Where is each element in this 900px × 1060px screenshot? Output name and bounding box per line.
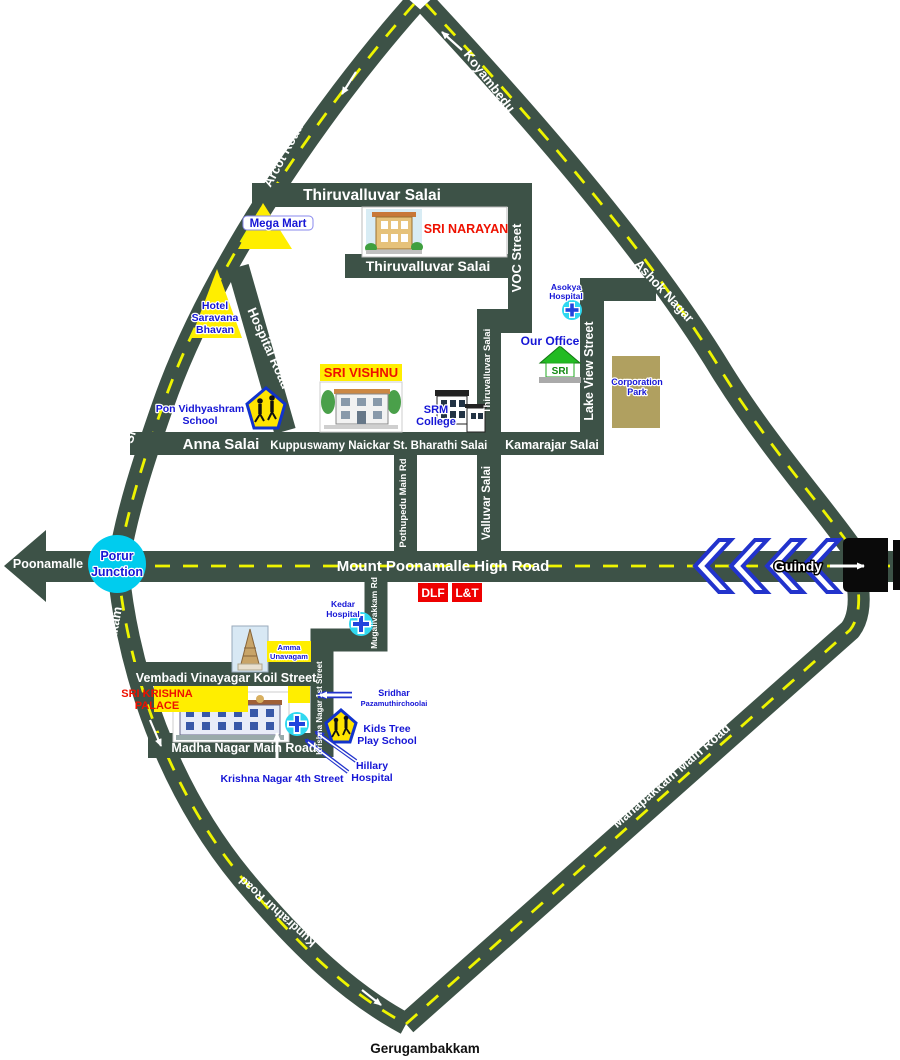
window xyxy=(450,400,456,407)
place-label-poonamalle: Poonamalle xyxy=(13,557,83,571)
window xyxy=(391,221,398,229)
cross-blue xyxy=(295,716,299,732)
ground xyxy=(366,250,422,254)
road-label-mphr: Mount Poonamalle High Road xyxy=(337,558,550,575)
road-label-thiruvalluvar-top: Thiruvalluvar Salai xyxy=(303,187,441,204)
figure-head xyxy=(344,716,349,721)
road-label-bharathi: Bharathi Salai xyxy=(411,440,488,452)
road-label-voc: VOC Street xyxy=(509,223,524,292)
road-label-pothupedu: Pothupedu Main Rd xyxy=(398,458,409,547)
landmark-label-amma-2: Unavagam xyxy=(270,652,308,661)
window xyxy=(391,234,398,242)
road-label-kamarajar: Kamarajar Salai xyxy=(505,438,599,452)
road-label-lake-view: Lake View Street xyxy=(582,321,596,421)
road-label-valluvar: Valluvar Salai xyxy=(481,466,493,540)
landmark-label-dlf: DLF xyxy=(421,586,444,600)
landmark-label-sridhar-1: Sridhar xyxy=(378,688,410,698)
window xyxy=(357,398,366,406)
figure-head xyxy=(334,718,339,723)
asokya-hospital-cross-icon xyxy=(562,300,582,320)
road-label-thiruvalluvar-mid: Thiruvalluvar Salai xyxy=(366,258,491,274)
landmark-label-sri-narayan: SRI NARAYAN xyxy=(424,222,509,236)
house-base xyxy=(539,377,581,383)
road-label-thiruvalluvar-vert: Thiruvalluvar Salai xyxy=(482,329,493,413)
figure-head xyxy=(269,395,275,401)
landmark-label-mega-mart: Mega Mart xyxy=(250,218,307,230)
building-roof xyxy=(372,212,416,217)
landmark-label-lnt: L&T xyxy=(455,586,479,600)
door xyxy=(357,411,366,424)
road-label-krishna-4th: Krishna Nagar 4th Street xyxy=(220,773,344,785)
ground xyxy=(324,425,398,429)
road-label-manapakkam: Manapakkam Main Road xyxy=(609,720,733,830)
window xyxy=(186,722,194,730)
road-label-anna-salai: Anna Salai xyxy=(183,436,260,453)
window xyxy=(266,722,274,730)
window xyxy=(234,722,242,730)
landmark-label-asokya-2: Hospital xyxy=(549,291,583,301)
road-label-kundrathur: Kundrathur Road xyxy=(236,874,319,950)
window xyxy=(250,722,258,730)
road-label-kodambakkam: Kodambakkam xyxy=(94,605,125,699)
our-office-house-icon: SRI xyxy=(539,346,581,383)
dome xyxy=(256,695,264,703)
porur-junction-label-line1: Porur xyxy=(100,549,133,563)
sridhar-location-box xyxy=(288,686,310,703)
landmark-label-kedar-1: Kedar xyxy=(331,599,356,609)
landmark-label-srm-1: SRM xyxy=(424,404,448,416)
landmark-label-corporation-2: Park xyxy=(627,387,648,397)
road-label-kuppuswamy: Kuppuswamy Naickar St. xyxy=(270,440,407,452)
landmark-label-corporation-1: Corporation xyxy=(611,377,663,387)
window xyxy=(381,221,388,229)
window xyxy=(401,234,408,242)
window xyxy=(373,398,382,406)
landmark-label-hillary-2: Hospital xyxy=(351,772,393,784)
landmark-label-sri-vishnu: SRI VISHNU xyxy=(324,365,398,380)
building-roof xyxy=(435,390,469,396)
lane-dash xyxy=(119,4,414,560)
landmark-label-hotel-saravana-2: Saravana xyxy=(192,312,239,324)
landmark-label-kids-tree-1: Kids Tree xyxy=(363,723,410,735)
road-label-madha-nagar: Madha Nagar Main Road xyxy=(171,741,316,755)
cross-blue xyxy=(570,304,574,317)
landmark-label-sri-krishna-2: PALACE xyxy=(135,700,179,712)
landmark-label-sridhar-2: Pazamuthirchoolai xyxy=(361,699,428,708)
porur-junction-label-line2: Junction xyxy=(91,565,143,579)
temple-base xyxy=(238,664,262,670)
road-label-mugalivakkam: Mugalivakkam Rd xyxy=(369,577,379,649)
place-label-guindy: Guindy xyxy=(774,558,822,574)
window xyxy=(341,398,350,406)
landmark-label-pon-school-2: School xyxy=(182,415,217,427)
window xyxy=(373,411,382,419)
window xyxy=(266,709,274,717)
house-roof xyxy=(540,346,580,363)
landmark-label-hotel-saravana-3: Bhavan xyxy=(196,324,234,336)
window xyxy=(250,709,258,717)
tree xyxy=(321,390,335,414)
window xyxy=(459,400,465,407)
building-roof xyxy=(334,389,390,394)
house-sri-text: SRI xyxy=(552,366,569,377)
ground xyxy=(176,735,284,740)
window xyxy=(341,411,350,419)
landmark-label-our-office: Our Office xyxy=(521,334,580,348)
location-map: SRI xyxy=(0,0,900,1060)
place-label-gerugambakkam: Gerugambakkam xyxy=(370,1041,480,1056)
landmark-label-kids-tree-2: Play School xyxy=(357,735,417,747)
landmark-label-pon-school-1: Pon Vidhyashram xyxy=(156,403,245,415)
window xyxy=(218,722,226,730)
landmark-label-hotel-saravana-1: Hotel xyxy=(202,300,228,312)
porur-junction-circle xyxy=(88,535,146,593)
window xyxy=(401,221,408,229)
landmark-label-hillary-1: Hillary xyxy=(356,760,388,772)
flyover-edge-icon xyxy=(893,540,900,590)
road-label-vembadi: Vembadi Vinayagar Koil Street xyxy=(136,671,317,685)
landmark-label-srm-2: College xyxy=(416,416,456,428)
hillary-hospital-cross-icon xyxy=(285,712,309,736)
landmark-label-amma-1: Amma xyxy=(278,643,302,652)
vembadi-temple-icon xyxy=(232,626,268,672)
window xyxy=(471,413,476,419)
arcot-sriperumbudur-road-shape xyxy=(119,4,414,560)
window xyxy=(381,234,388,242)
window xyxy=(459,411,465,418)
window xyxy=(202,722,210,730)
landmark-label-sri-krishna-1: SRI KRISHNA xyxy=(121,688,193,700)
figure-head xyxy=(257,398,263,404)
landmark-label-kedar-2: Hospital xyxy=(326,609,360,619)
